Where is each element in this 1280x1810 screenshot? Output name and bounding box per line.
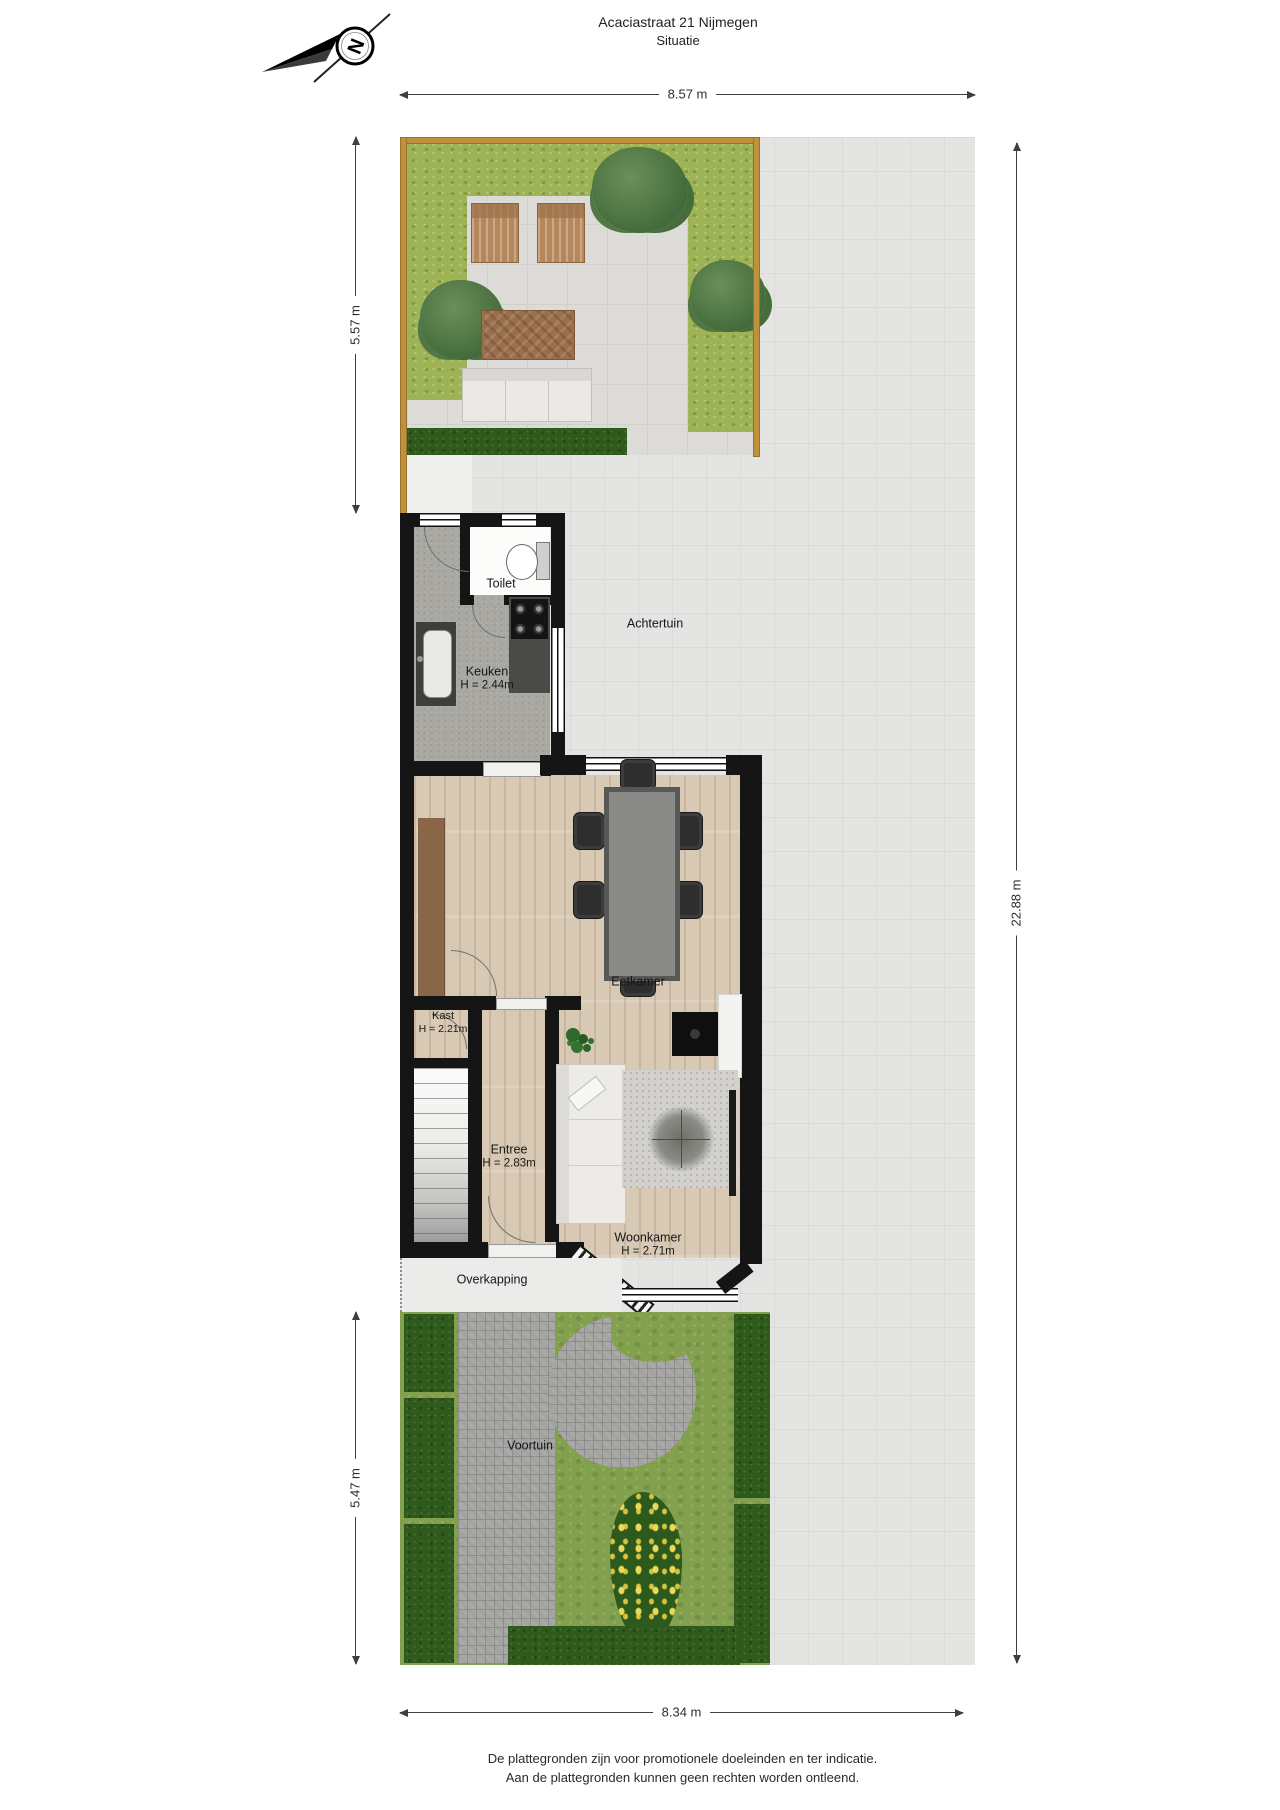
voortuin-label-text: Voortuin <box>507 1439 553 1454</box>
sofa-back <box>557 1065 569 1223</box>
garden-fence-top <box>400 137 760 144</box>
sofa-seam <box>569 1119 625 1120</box>
garden-fence-left <box>400 137 407 515</box>
wall-kast-top <box>400 996 482 1010</box>
room-label-overkapping: Overkapping <box>457 1273 528 1288</box>
sofa-pillow <box>568 1076 607 1112</box>
wc-tank <box>536 542 550 580</box>
keuken-eetkamer-opening <box>483 762 541 777</box>
entree-height-text: H = 2.83m <box>482 1158 535 1172</box>
front-door <box>488 1244 558 1258</box>
eetkamer-terrace-window <box>586 757 726 771</box>
garden-lounger <box>471 203 519 263</box>
eetkamer-label-text: Eetkamer <box>611 975 665 990</box>
dimension-front-garden-depth: 5.47 m <box>355 1312 356 1664</box>
tree-icon <box>592 147 688 233</box>
dimension-label: 8.57 m <box>659 87 717 102</box>
wall-house-right <box>740 770 762 1264</box>
bay-window-front <box>622 1288 738 1302</box>
toilet-door-opening <box>474 595 504 605</box>
woonkamer-height-text: H = 2.71m <box>614 1246 681 1260</box>
room-label-kast: Kast H = 2.21m <box>419 1010 468 1036</box>
fireplace-knob <box>690 1029 700 1039</box>
hedge-gap <box>404 1518 454 1524</box>
room-label-eetkamer: Eetkamer <box>611 975 665 990</box>
keuken-side-window <box>551 628 565 732</box>
front-hedge-right <box>734 1314 770 1663</box>
corner-sofa <box>556 1064 626 1224</box>
wall-cabinet <box>418 818 445 1004</box>
wc-bowl <box>506 544 538 580</box>
plant-icon <box>566 1028 580 1042</box>
dimension-plot-depth: 22.88 m <box>1016 143 1017 1663</box>
wall-divider-stub-left <box>482 996 496 1010</box>
tv-screen <box>729 1090 736 1196</box>
overkapping-label-text: Overkapping <box>457 1273 528 1288</box>
eetkamer-door-opening <box>496 998 547 1010</box>
room-label-keuken: Keuken H = 2.44m <box>460 665 513 694</box>
staircase <box>414 1068 468 1258</box>
wall-kast-bottom <box>414 1058 482 1068</box>
sideboard <box>718 994 742 1078</box>
compass-needle-lower <box>262 49 332 72</box>
stove-icon <box>511 599 548 639</box>
grass-notch <box>612 1312 698 1362</box>
plan-subtitle: Situatie <box>398 33 958 48</box>
woonkamer-label-text: Woonkamer <box>614 1231 681 1246</box>
wall-house-left <box>400 513 414 1258</box>
sofa-seam <box>548 381 549 421</box>
back-garden-hedge-left <box>407 144 467 400</box>
keuken-height-text: H = 2.44m <box>460 680 513 694</box>
wall-facade-left <box>400 1242 488 1258</box>
kast-height-text: H = 2.21m <box>419 1023 468 1036</box>
dimension-label: 22.88 m <box>1009 871 1024 936</box>
plan-header: Acaciastraat 21 Nijmegen Situatie <box>398 14 958 48</box>
disclaimer-line2: Aan de plattegronden kunnen geen rechten… <box>400 1769 965 1788</box>
dining-chair <box>573 881 605 919</box>
compass-north-icon: N <box>260 8 394 94</box>
achtertuin-label-text: Achtertuin <box>627 617 683 632</box>
floorplan-canvas: Acaciastraat 21 Nijmegen Situatie N Acht… <box>0 0 1280 1810</box>
kast-label-text: Kast <box>419 1010 468 1023</box>
dimension-plot-width-top: 8.57 m <box>400 94 975 95</box>
room-label-achtertuin: Achtertuin <box>627 617 683 632</box>
dimension-label: 5.57 m <box>348 296 363 354</box>
garden-hedge-strip <box>405 428 627 455</box>
garden-table <box>481 310 575 360</box>
disclaimer-line1: De plattegronden zijn voor promotionele … <box>400 1750 965 1769</box>
dimension-back-garden-depth: 5.57 m <box>355 137 356 513</box>
garden-fence-right <box>753 137 760 457</box>
front-hedge-left <box>404 1314 454 1663</box>
hedge-gap <box>734 1498 770 1504</box>
sofa-seam <box>569 1165 625 1166</box>
room-label-entree: Entree H = 2.83m <box>482 1143 535 1172</box>
garden-lounger <box>537 203 585 263</box>
room-label-voortuin: Voortuin <box>507 1439 553 1454</box>
toilet-window <box>502 513 536 527</box>
disclaimer: De plattegronden zijn voor promotionele … <box>400 1750 965 1788</box>
room-label-toilet: Toilet <box>486 577 515 592</box>
sofa-seam <box>505 381 506 421</box>
dimension-label: 8.34 m <box>653 1705 711 1720</box>
front-path <box>458 1312 555 1664</box>
back-path <box>407 455 472 513</box>
front-hedge-bottom <box>508 1626 740 1665</box>
entree-label-text: Entree <box>482 1143 535 1158</box>
garden-sofa <box>462 368 592 422</box>
page-title: Acaciastraat 21 Nijmegen <box>398 14 958 30</box>
room-label-woonkamer: Woonkamer H = 2.71m <box>614 1231 681 1260</box>
dining-chair <box>573 812 605 850</box>
wall-divider-stub-right <box>545 996 581 1010</box>
sink-icon <box>423 630 452 698</box>
wall-kast-right <box>468 1010 482 1062</box>
wall-eetkamer-top-stub <box>540 755 586 775</box>
dimension-plot-width-bottom: 8.34 m <box>400 1712 963 1713</box>
wall-stairs-right <box>468 1068 482 1258</box>
dimension-label: 5.47 m <box>348 1459 363 1517</box>
faucet-icon <box>417 656 423 662</box>
dining-table <box>604 787 680 981</box>
keuken-label-text: Keuken <box>460 665 513 680</box>
toilet-label-text: Toilet <box>486 577 515 592</box>
ceiling-fan-icon <box>648 1106 714 1172</box>
hedge-gap <box>404 1392 454 1398</box>
